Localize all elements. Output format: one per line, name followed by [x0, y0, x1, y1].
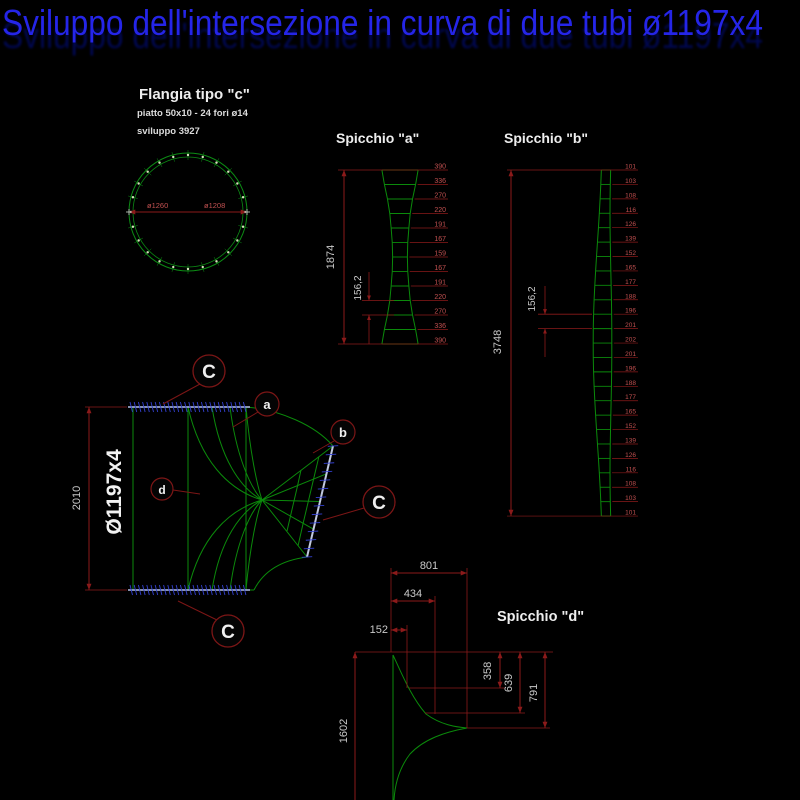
width-label: 202 [625, 337, 636, 344]
hatch-tick [328, 446, 338, 447]
spicchio-a-title: Spicchio "a" [336, 130, 419, 146]
pipe-diameter-label: Ø1197x4 [103, 449, 126, 535]
spa-rows-left-edge [382, 170, 393, 344]
hatch-tick [310, 523, 320, 524]
balloon-d-label: d [158, 483, 165, 497]
spicchio-d-drop-3: 791 [528, 684, 540, 702]
width-label: 336 [434, 178, 446, 185]
spicchio-a-segment-dim [362, 272, 394, 344]
hatch-tick [308, 531, 318, 532]
cad-canvas: Sviluppo dell'intersezione in curva di d… [0, 0, 800, 800]
width-label: 196 [625, 308, 636, 315]
bolt-hole [146, 170, 148, 172]
bolt-hole [172, 156, 174, 158]
balloon-a: a [255, 392, 279, 416]
spicchio-d-dimensions [355, 568, 553, 800]
width-label: 177 [625, 394, 636, 401]
spicchio-b-segment-label: 156,2 [527, 286, 538, 311]
hatch-tick [322, 471, 332, 472]
main-height-label: 2010 [71, 486, 83, 510]
spicchio-d-drop-2: 639 [503, 674, 515, 692]
bolt-hole [132, 226, 134, 228]
width-label: 108 [625, 192, 636, 199]
width-label: 159 [434, 251, 446, 258]
flange-dim-inner-label: ø1208 [204, 201, 225, 210]
width-label: 270 [434, 193, 446, 200]
hatch-tick [314, 505, 324, 506]
bolt-hole [236, 239, 238, 241]
balloon-a-label: a [263, 397, 271, 412]
bolt-hole [227, 170, 229, 172]
bolt-hole [132, 196, 134, 198]
balloon-c-top-label: C [202, 362, 216, 383]
spicchio-a-segment-label: 156,2 [353, 275, 364, 300]
width-label: 177 [625, 279, 636, 286]
hatch-tick [304, 548, 314, 549]
spicchio-d-height: 1602 [338, 719, 350, 743]
hatch-tick [326, 454, 336, 455]
width-label: 165 [625, 264, 636, 271]
width-label: 196 [625, 365, 636, 372]
balloon-b-label: b [339, 425, 347, 440]
balloon-c-right-label: C [372, 493, 386, 514]
width-label: 336 [434, 323, 446, 330]
main-intersection-view: 2010 Ø1197x4 [71, 355, 395, 647]
width-label: 103 [625, 495, 636, 502]
width-label: 139 [625, 437, 636, 444]
hatch-tick [320, 480, 330, 481]
spicchio-d-drop-1: 358 [482, 662, 494, 680]
spicchio-a-gore: 390336270220191167159167191220270336390 [338, 164, 448, 345]
width-label: 188 [625, 293, 636, 300]
width-label: 270 [434, 309, 446, 316]
width-label: 152 [625, 423, 636, 430]
hatch-tick [306, 540, 316, 541]
spicchio-a-height-label: 1874 [325, 245, 337, 269]
spicchio-b-title: Spicchio "b" [504, 130, 588, 146]
spicchio-a-drawing: Spicchio "a" 390336270220191167159167191… [325, 130, 448, 345]
width-label: 201 [625, 322, 636, 329]
hatch-tick [302, 557, 312, 558]
flange-title: Flangia tipo "c" [139, 86, 250, 103]
bolt-hole [137, 239, 139, 241]
balloon-c-top: C [193, 355, 225, 387]
width-label: 220 [434, 294, 446, 301]
width-label: 220 [434, 207, 446, 214]
hatch-tick [324, 463, 334, 464]
width-label: 167 [434, 265, 446, 272]
flange-dim-outer-label: ø1260 [147, 201, 168, 210]
width-label: 191 [434, 280, 446, 287]
hatch-tick [316, 497, 326, 498]
hatch-tick [318, 488, 328, 489]
width-label: 152 [625, 250, 636, 257]
width-label: 167 [434, 236, 446, 243]
spicchio-b-gore: 1011031081161261391521651771881962012022… [507, 164, 638, 517]
width-label: 191 [434, 222, 446, 229]
balloon-d: d [151, 478, 173, 500]
flange-drawing: Flangia tipo "c" piatto 50x10 - 24 fori … [126, 86, 250, 274]
bolt-hole [242, 196, 244, 198]
balloon-c-right: C [363, 486, 395, 518]
bolt-hole [242, 226, 244, 228]
balloon-c-bottom: C [212, 615, 244, 647]
flange-subtitle: piatto 50x10 - 24 fori ø14 [137, 108, 249, 119]
bolt-hole [172, 266, 174, 268]
bolt-hole [227, 251, 229, 253]
spicchio-d-width-small: 152 [370, 624, 388, 636]
balloon-c-bottom-label: C [221, 622, 235, 643]
flange-sviluppo: sviluppo 3927 [137, 126, 200, 137]
bolt-hole [202, 266, 204, 268]
width-label: 188 [625, 380, 636, 387]
bolt-hole [187, 154, 189, 156]
spicchio-d-drawing: Spicchio "d" [338, 560, 584, 800]
width-label: 139 [625, 236, 636, 243]
spicchio-d-title: Spicchio "d" [497, 609, 584, 625]
spicchio-d-shape [393, 655, 467, 800]
width-label: 201 [625, 351, 636, 358]
width-label: 108 [625, 481, 636, 488]
width-label: 116 [626, 466, 637, 473]
spicchio-d-width-mid: 434 [404, 588, 422, 600]
spicchio-b-drawing: Spicchio "b" 101103108116126139152165177… [492, 130, 638, 517]
bolt-hole [187, 268, 189, 270]
bolt-hole [158, 260, 160, 262]
bolt-hole [236, 182, 238, 184]
bolt-hole [215, 260, 217, 262]
bolt-hole [215, 161, 217, 163]
width-label: 390 [434, 338, 446, 345]
spicchio-b-segment-dim [538, 286, 592, 357]
width-label: 165 [625, 409, 636, 416]
hatch-tick [312, 514, 322, 515]
bolt-hole [158, 161, 160, 163]
spicchio-b-height-label: 3748 [492, 330, 504, 354]
spicchio-d-width-total: 801 [420, 560, 438, 572]
width-label: 126 [625, 452, 636, 459]
drawing-sheet: Flangia tipo "c" piatto 50x10 - 24 fori … [0, 0, 800, 800]
bolt-hole [146, 251, 148, 253]
width-label: 390 [434, 164, 446, 171]
width-label: 103 [625, 178, 636, 185]
bolt-hole [202, 156, 204, 158]
bolt-hole [137, 182, 139, 184]
balloon-b: b [331, 420, 355, 444]
width-label: 116 [626, 207, 637, 214]
width-label: 101 [625, 510, 636, 517]
width-label: 101 [625, 164, 636, 171]
width-label: 126 [625, 221, 636, 228]
